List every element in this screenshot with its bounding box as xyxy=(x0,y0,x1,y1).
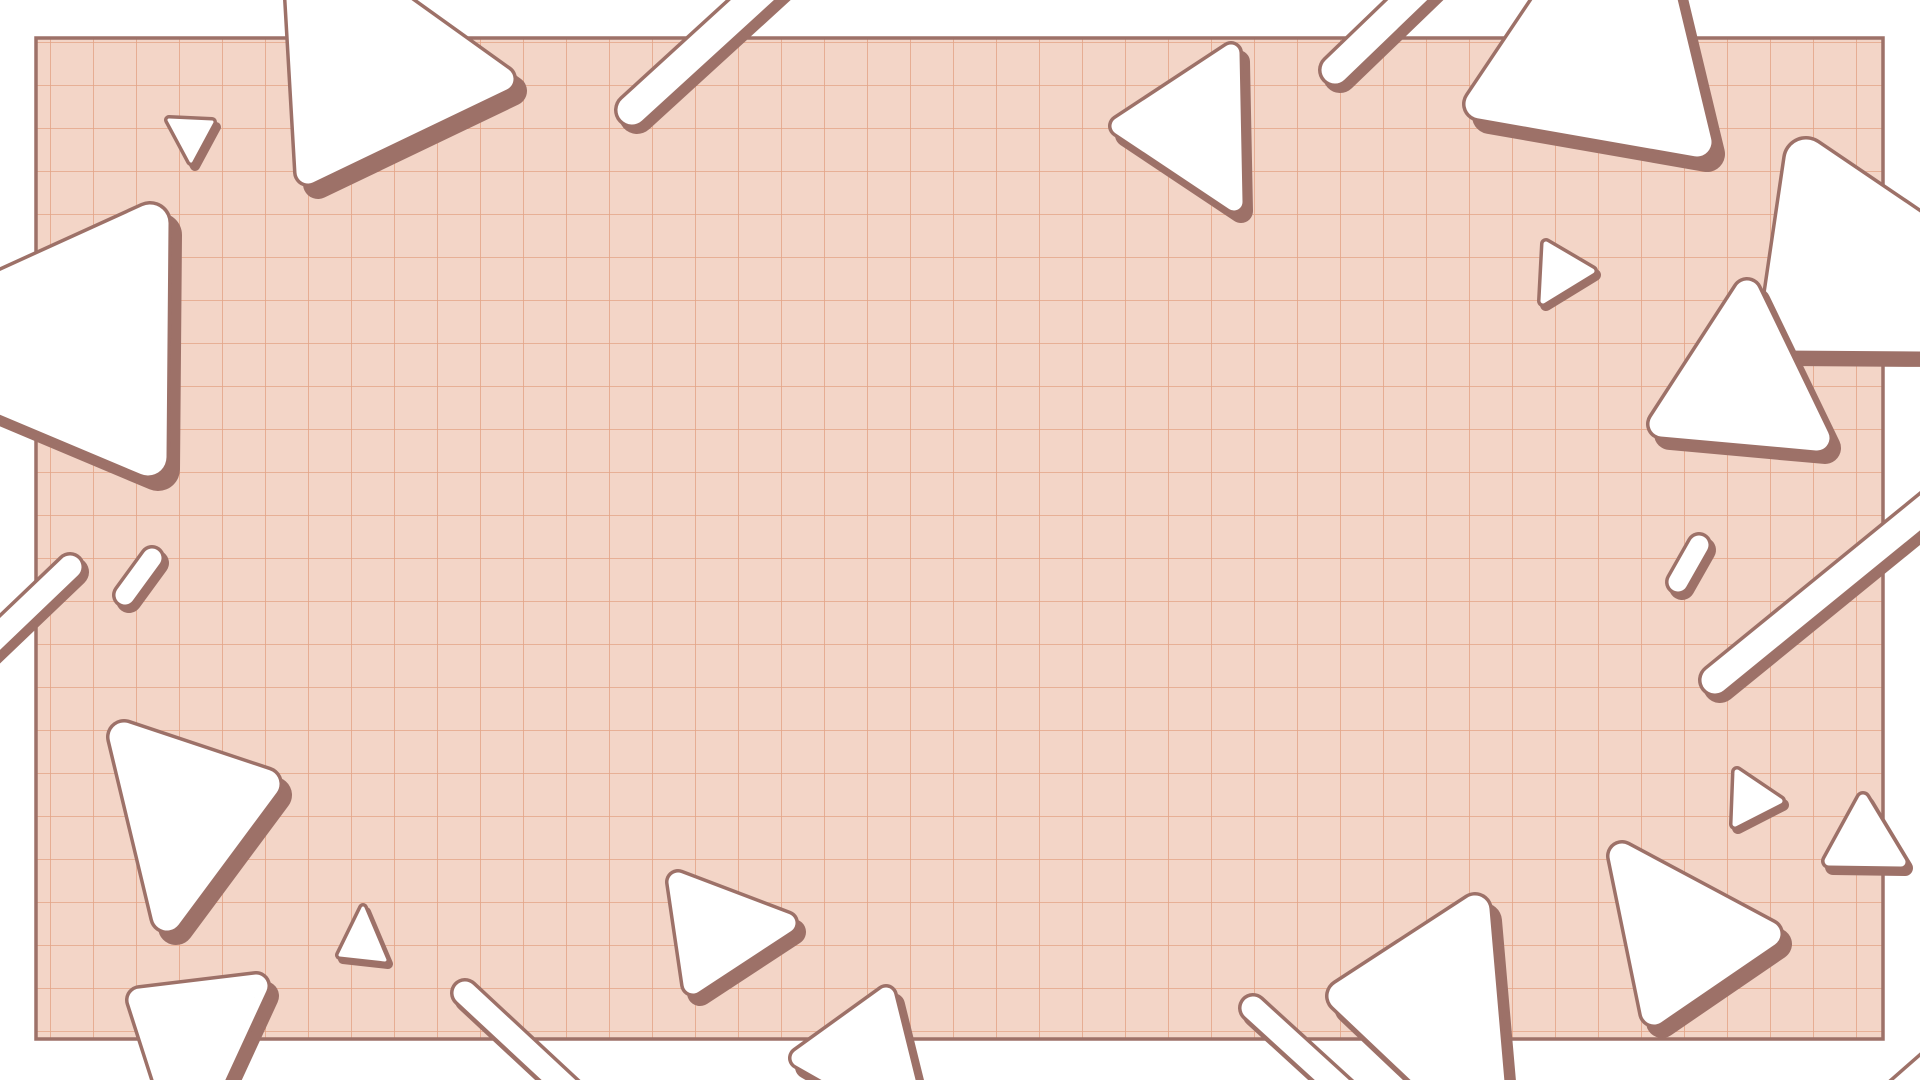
triangle-big-top-right xyxy=(1480,0,1707,154)
triangle-left-edge xyxy=(0,223,160,469)
triangle-bottom-left-cut xyxy=(140,986,264,1080)
background-scene xyxy=(0,0,1920,1080)
dash-right xyxy=(1678,545,1703,587)
decorative-slide-background xyxy=(0,0,1920,1080)
